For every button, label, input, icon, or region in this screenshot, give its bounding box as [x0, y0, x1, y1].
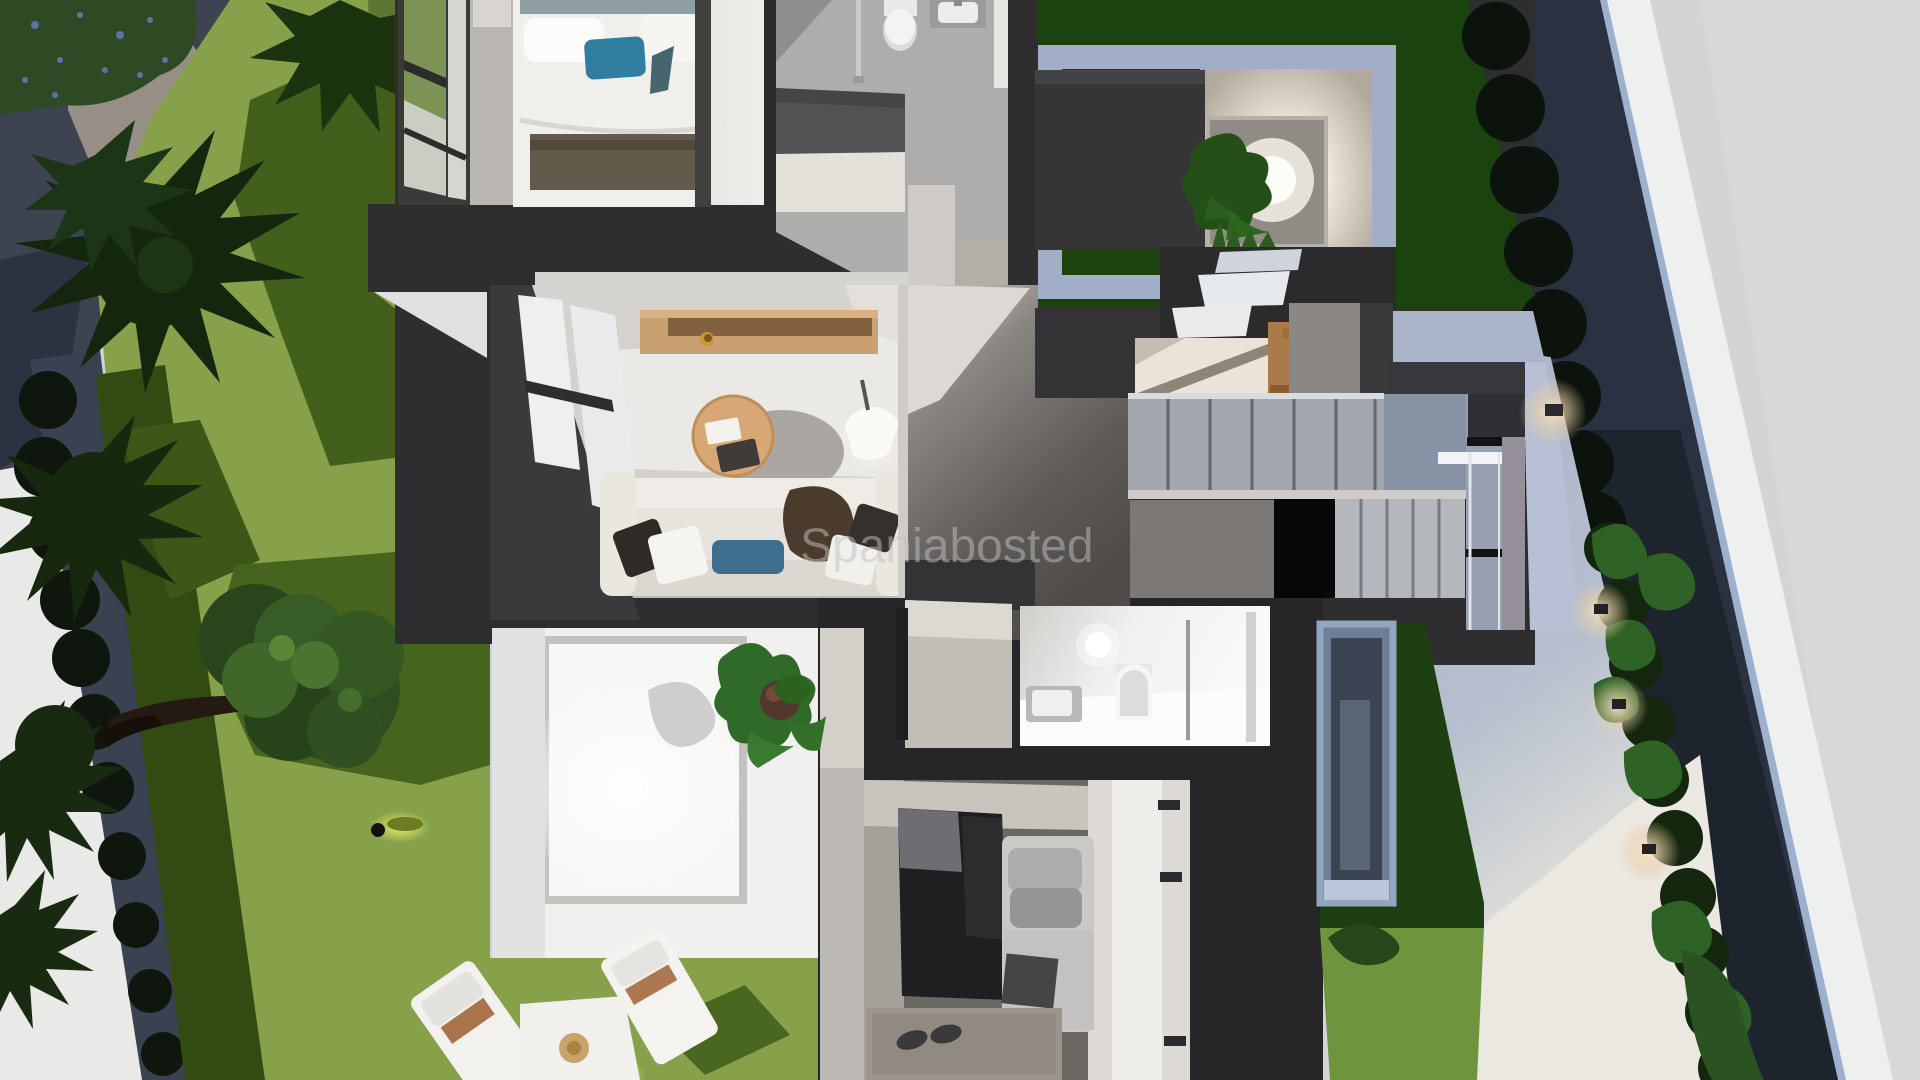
svg-text:Spaniabosted: Spaniabosted: [800, 520, 1094, 573]
